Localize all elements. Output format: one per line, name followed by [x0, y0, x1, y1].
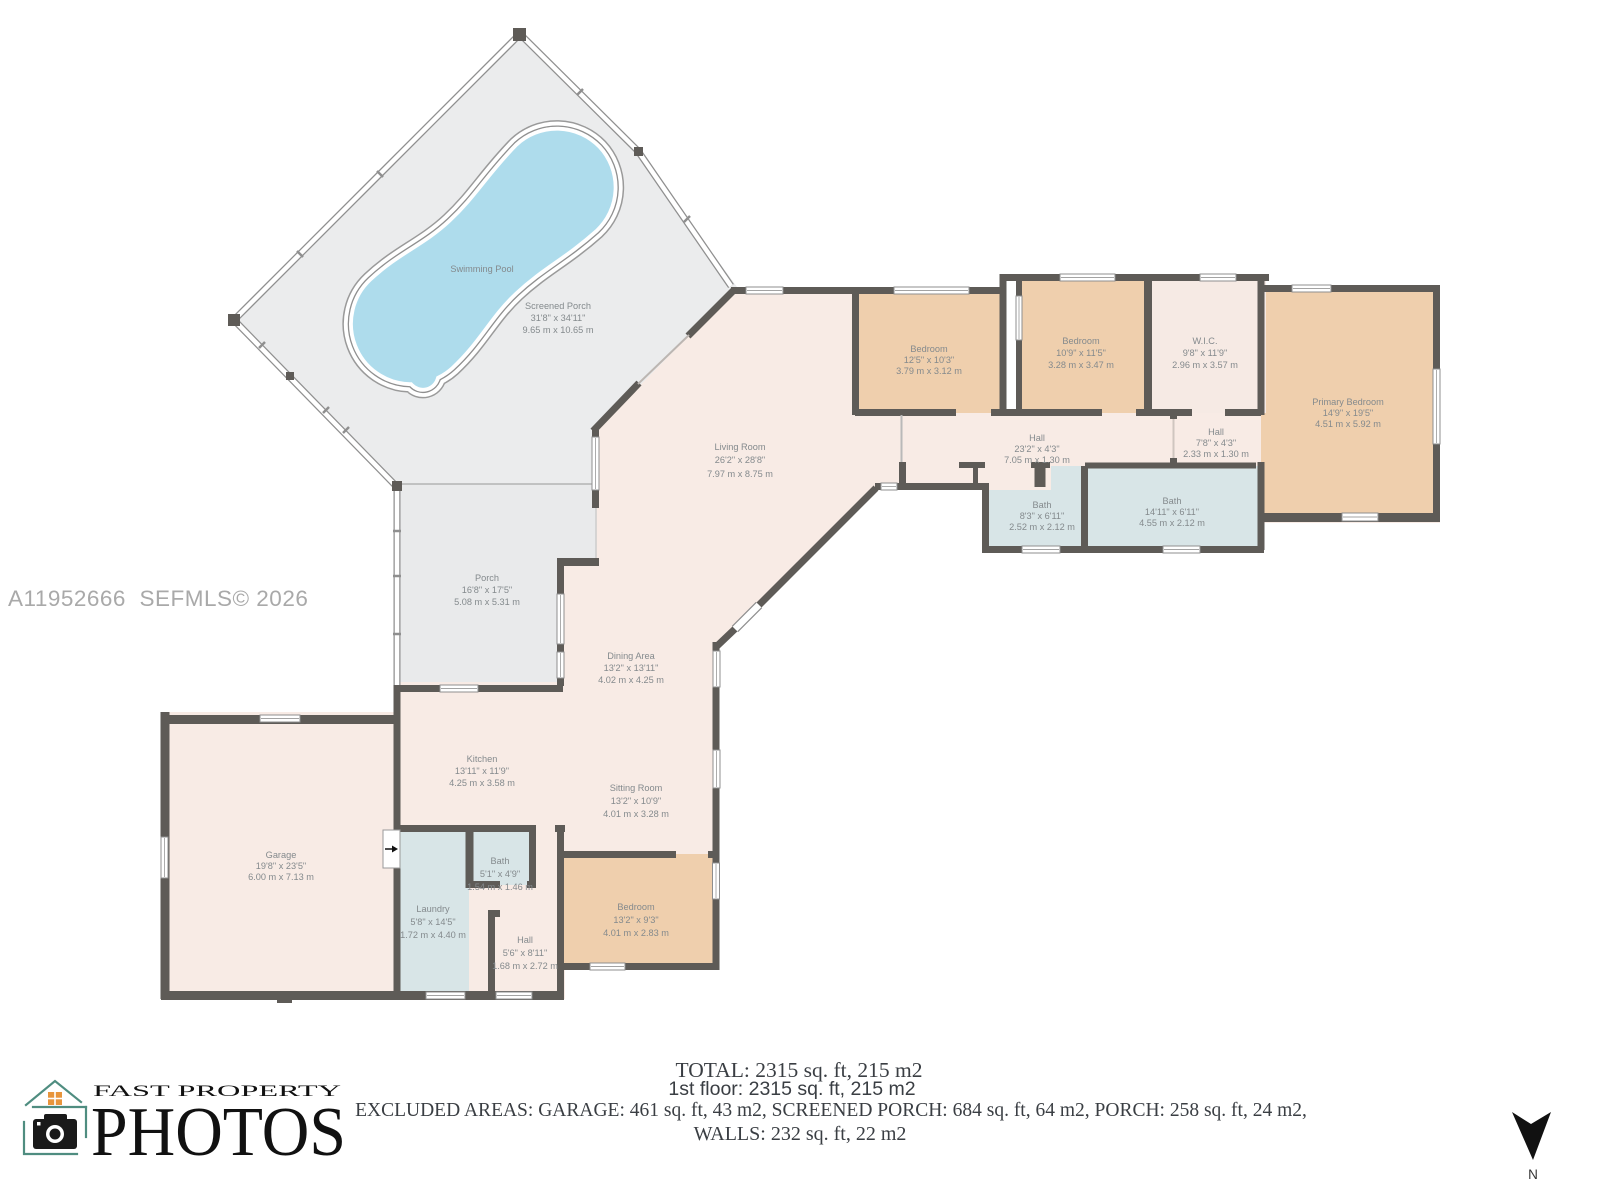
svg-text:1.68 m x 2.72 m: 1.68 m x 2.72 m	[492, 961, 558, 971]
svg-text:Bedroom: Bedroom	[617, 902, 655, 912]
svg-text:4.01 m x 2.83 m: 4.01 m x 2.83 m	[603, 928, 669, 938]
svg-text:W.I.C.: W.I.C.	[1192, 336, 1217, 346]
svg-text:13'11" x 11'9": 13'11" x 11'9"	[455, 766, 509, 776]
svg-text:2.96 m x 3.57 m: 2.96 m x 3.57 m	[1172, 360, 1238, 370]
svg-text:5'1" x 4'9": 5'1" x 4'9"	[480, 869, 520, 879]
svg-text:3.79 m x 3.12 m: 3.79 m x 3.12 m	[896, 366, 962, 376]
svg-text:7.97 m x 8.75 m: 7.97 m x 8.75 m	[707, 469, 773, 479]
svg-text:Bath: Bath	[491, 856, 510, 866]
svg-text:Bedroom: Bedroom	[910, 344, 948, 354]
svg-text:Hall: Hall	[517, 935, 533, 945]
svg-text:PHOTOS: PHOTOS	[91, 1094, 346, 1171]
svg-text:WALLS: 232 sq. ft, 22 m2: WALLS: 232 sq. ft, 22 m2	[694, 1123, 907, 1145]
svg-text:16'8" x 17'5": 16'8" x 17'5"	[462, 585, 512, 595]
svg-text:19'8" x 23'5": 19'8" x 23'5"	[256, 861, 306, 871]
svg-text:Primary Bedroom: Primary Bedroom	[1312, 397, 1384, 407]
svg-text:14'11" x 6'11": 14'11" x 6'11"	[1145, 507, 1199, 517]
svg-text:5'8" x 14'5": 5'8" x 14'5"	[410, 917, 455, 927]
svg-text:8'3" x 6'11": 8'3" x 6'11"	[1020, 511, 1065, 521]
svg-text:Kitchen: Kitchen	[467, 754, 498, 764]
svg-text:Bath: Bath	[1033, 500, 1052, 510]
svg-text:14'9" x 19'5": 14'9" x 19'5"	[1323, 408, 1373, 418]
svg-text:Porch: Porch	[475, 573, 499, 583]
svg-text:2.33 m x 1.30 m: 2.33 m x 1.30 m	[1183, 449, 1249, 459]
svg-text:7'8" x 4'3": 7'8" x 4'3"	[1196, 438, 1236, 448]
svg-text:Laundry: Laundry	[416, 904, 450, 914]
svg-text:23'2" x 4'3": 23'2" x 4'3"	[1014, 444, 1059, 454]
svg-text:1.54 m x 1.46 m: 1.54 m x 1.46 m	[467, 882, 533, 892]
svg-text:9'8" x 11'9": 9'8" x 11'9"	[1183, 348, 1228, 358]
svg-text:13'2" x 10'9": 13'2" x 10'9"	[611, 796, 661, 806]
svg-text:31'8" x 34'11": 31'8" x 34'11"	[531, 313, 586, 323]
svg-text:A11952666 SEFMLS© 2026: A11952666 SEFMLS© 2026	[8, 586, 308, 611]
svg-text:Screened Porch: Screened Porch	[525, 301, 591, 311]
svg-text:Bedroom: Bedroom	[1062, 336, 1100, 346]
svg-text:Hall: Hall	[1029, 433, 1045, 443]
svg-text:3.28 m x 3.47 m: 3.28 m x 3.47 m	[1048, 360, 1114, 370]
svg-text:6.00 m x 7.13 m: 6.00 m x 7.13 m	[248, 872, 314, 882]
svg-text:4.01 m x 3.28 m: 4.01 m x 3.28 m	[603, 809, 669, 819]
svg-text:Garage: Garage	[266, 850, 297, 860]
svg-text:Bath: Bath	[1163, 496, 1182, 506]
svg-text:13'2" x 9'3": 13'2" x 9'3"	[613, 915, 658, 925]
svg-text:7.05 m x 1.30 m: 7.05 m x 1.30 m	[1004, 455, 1070, 465]
svg-text:12'5" x 10'3": 12'5" x 10'3"	[904, 355, 954, 365]
svg-text:N: N	[1528, 1167, 1538, 1182]
svg-text:Swimming Pool: Swimming Pool	[450, 264, 513, 274]
svg-text:4.25 m x 3.58 m: 4.25 m x 3.58 m	[449, 778, 515, 788]
svg-text:1.72 m x 4.40 m: 1.72 m x 4.40 m	[400, 930, 466, 940]
svg-text:5'6" x 8'11": 5'6" x 8'11"	[503, 948, 548, 958]
svg-text:Dining Area: Dining Area	[607, 651, 655, 661]
svg-text:2.52 m x 2.12 m: 2.52 m x 2.12 m	[1009, 522, 1075, 532]
svg-text:EXCLUDED AREAS: GARAGE: 461 sq: EXCLUDED AREAS: GARAGE: 461 sq. ft, 43 m…	[355, 1100, 1307, 1121]
svg-text:26'2" x 28'8": 26'2" x 28'8"	[715, 455, 765, 465]
svg-text:9.65 m x 10.65 m: 9.65 m x 10.65 m	[523, 325, 594, 335]
svg-text:4.55 m x 2.12 m: 4.55 m x 2.12 m	[1139, 518, 1205, 528]
svg-text:5.08 m x 5.31 m: 5.08 m x 5.31 m	[454, 597, 520, 607]
svg-text:1st floor: 2315 sq. ft, 215 m2: 1st floor: 2315 sq. ft, 215 m2	[668, 1078, 915, 1100]
svg-text:13'2" x 13'11": 13'2" x 13'11"	[604, 663, 659, 673]
svg-text:Hall: Hall	[1208, 427, 1224, 437]
svg-text:Sitting Room: Sitting Room	[610, 783, 663, 793]
svg-text:10'9" x 11'5": 10'9" x 11'5"	[1056, 348, 1106, 358]
svg-text:4.51 m x 5.92 m: 4.51 m x 5.92 m	[1315, 419, 1381, 429]
svg-text:Living Room: Living Room	[714, 442, 765, 452]
svg-text:4.02 m x 4.25 m: 4.02 m x 4.25 m	[598, 675, 664, 685]
